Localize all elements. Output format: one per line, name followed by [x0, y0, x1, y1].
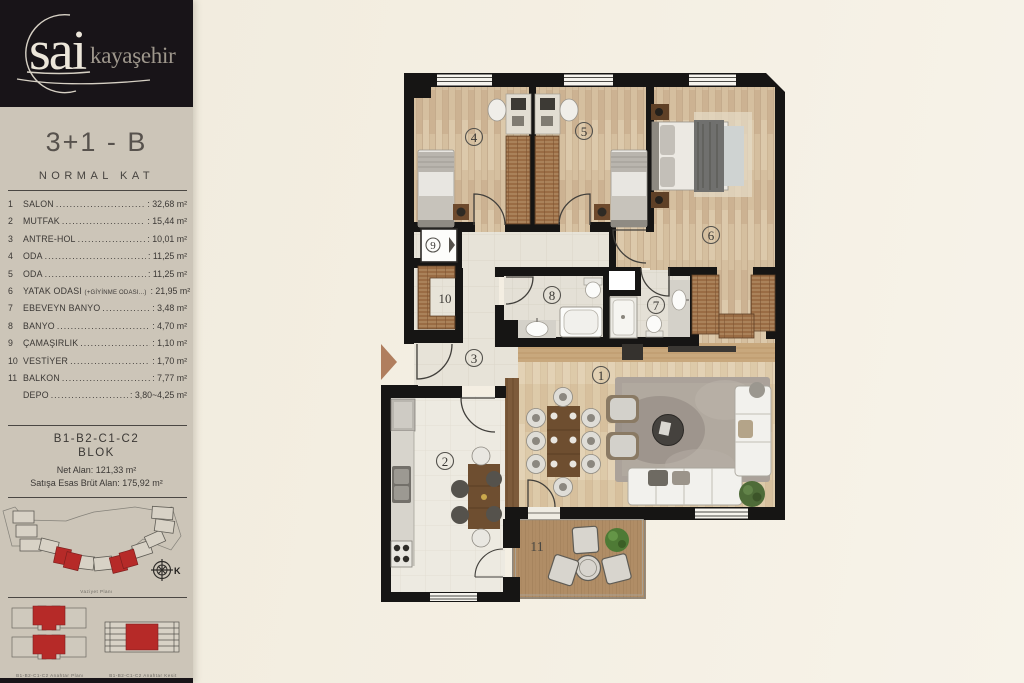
svg-text:5: 5 — [581, 124, 588, 139]
svg-text:2: 2 — [442, 454, 449, 469]
svg-text:11: 11 — [530, 540, 543, 555]
svg-text:6: 6 — [708, 228, 715, 243]
svg-text:10: 10 — [439, 291, 452, 306]
svg-text:7: 7 — [653, 298, 660, 313]
svg-text:8: 8 — [549, 288, 556, 303]
svg-text:9: 9 — [430, 240, 436, 252]
svg-text:1: 1 — [598, 368, 605, 383]
svg-text:3: 3 — [471, 351, 478, 366]
svg-text:4: 4 — [471, 130, 478, 145]
